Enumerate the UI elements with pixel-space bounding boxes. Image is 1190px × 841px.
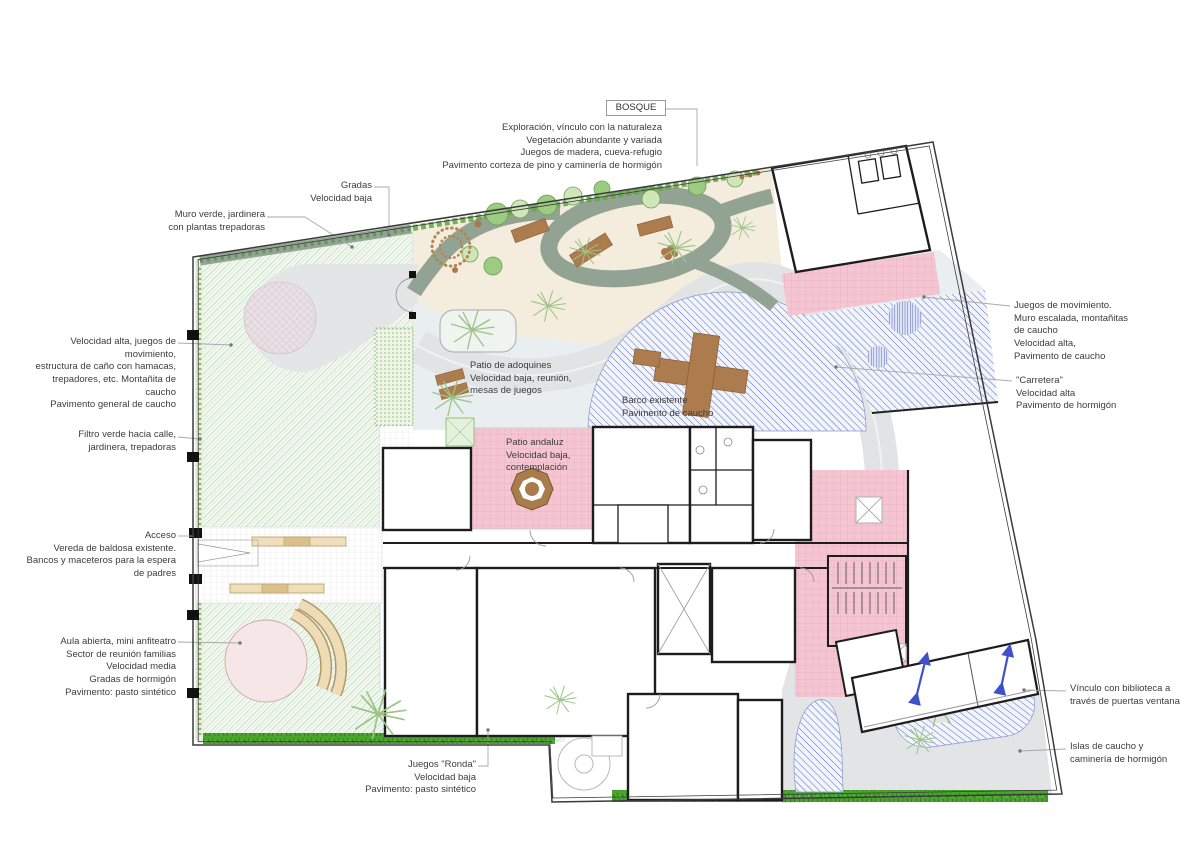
acceso-note: Acceso Vereda de baldosa existente. Banc… — [22, 530, 176, 581]
aula-oeste — [383, 448, 471, 530]
islas-caucho-note: Islas de caucho y caminería de hormigón — [1070, 741, 1188, 766]
montanita-caucho — [244, 282, 316, 354]
sanitarios — [690, 427, 753, 543]
sala-baja-2 — [738, 700, 782, 800]
vinculo-biblioteca-note: Vínculo con biblioteca a través de puert… — [1070, 683, 1188, 708]
carretera-note: "Carretera" Velocidad alta Pavimento de … — [1016, 375, 1186, 413]
jardinera-planter — [375, 328, 413, 426]
aula-abierta-note: Aula abierta, mini anfiteatro Sector de … — [22, 636, 176, 699]
filtro-verde-note: Filtro verde hacia calle, jardinera, tre… — [44, 429, 176, 454]
sala-sur-este — [712, 568, 795, 662]
juegos-movimiento-note: Juegos de movimiento. Muro escalada, mon… — [1014, 300, 1184, 363]
patio-adoquines-note: Patio de adoquines Velocidad baja, reuni… — [470, 360, 610, 398]
sala-baja-1 — [628, 694, 738, 800]
aula-noreste — [753, 440, 811, 540]
acceso-vereda — [189, 527, 382, 603]
bosque-note: Exploración, vínculo con la naturaleza V… — [356, 122, 662, 173]
gradas-note: Gradas Velocidad baja — [252, 180, 372, 205]
bosque-title-box: BOSQUE — [606, 100, 666, 116]
edificio-noreste — [772, 146, 930, 272]
patio-andaluz-note: Patio andaluz Velocidad baja, contemplac… — [506, 437, 616, 475]
barco-note: Barco existente Pavimento de caucho — [622, 395, 752, 420]
velocidad-alta-note: Velocidad alta, juegos de movimiento, es… — [22, 336, 176, 412]
muro-verde-note: Muro verde, jardinera con plantas trepad… — [114, 209, 265, 234]
site-plan-canvas: BOSQUE Exploración, vínculo con la natur… — [0, 0, 1190, 841]
juegos-ronda-note: Juegos "Ronda" Velocidad baja Pavimento:… — [328, 759, 476, 797]
